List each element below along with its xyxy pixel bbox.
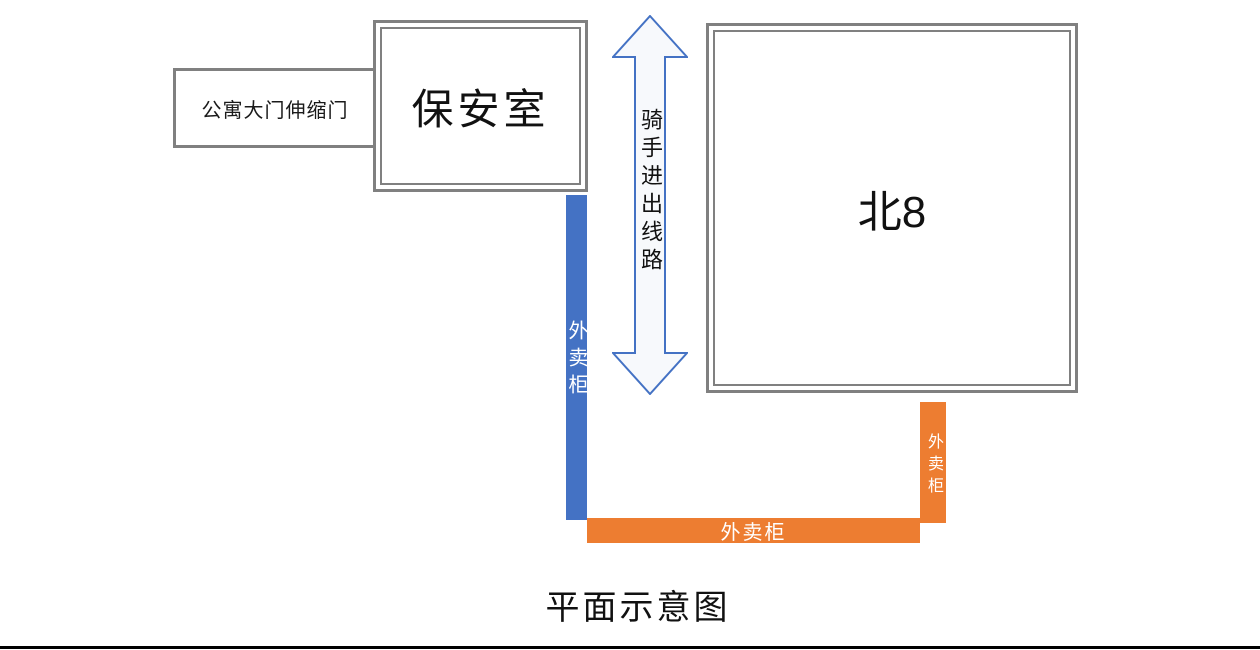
locker-bar-left: 外卖柜 bbox=[566, 195, 587, 520]
locker-bottom-label: 外卖柜 bbox=[721, 516, 787, 545]
diagram-title: 平面示意图 bbox=[546, 580, 731, 629]
gate-label: 公寓大门伸缩门 bbox=[202, 94, 349, 123]
north8-label: 北8 bbox=[858, 176, 926, 240]
north8-inner-border: 北8 bbox=[713, 30, 1071, 386]
locker-right-label: 外卖柜 bbox=[921, 433, 945, 499]
rider-route-arrow: 骑手进出线路 bbox=[612, 15, 688, 395]
north8-building-box: 北8 bbox=[706, 23, 1078, 393]
floor-plan-diagram: 公寓大门伸缩门 保安室 北8 骑手进出线路 外卖柜 外卖柜 外卖柜 平面示意图 bbox=[0, 0, 1260, 650]
security-room-label: 保安室 bbox=[411, 76, 549, 137]
locker-bar-bottom: 外卖柜 bbox=[587, 518, 920, 543]
locker-left-label: 外卖柜 bbox=[562, 320, 591, 401]
rider-route-label: 骑手进出线路 bbox=[634, 108, 666, 276]
security-room-box: 保安室 bbox=[373, 20, 588, 192]
locker-bar-right: 外卖柜 bbox=[920, 402, 946, 523]
bottom-rule bbox=[0, 646, 1260, 649]
gate-box: 公寓大门伸缩门 bbox=[173, 68, 377, 148]
security-room-inner-border: 保安室 bbox=[380, 27, 581, 185]
